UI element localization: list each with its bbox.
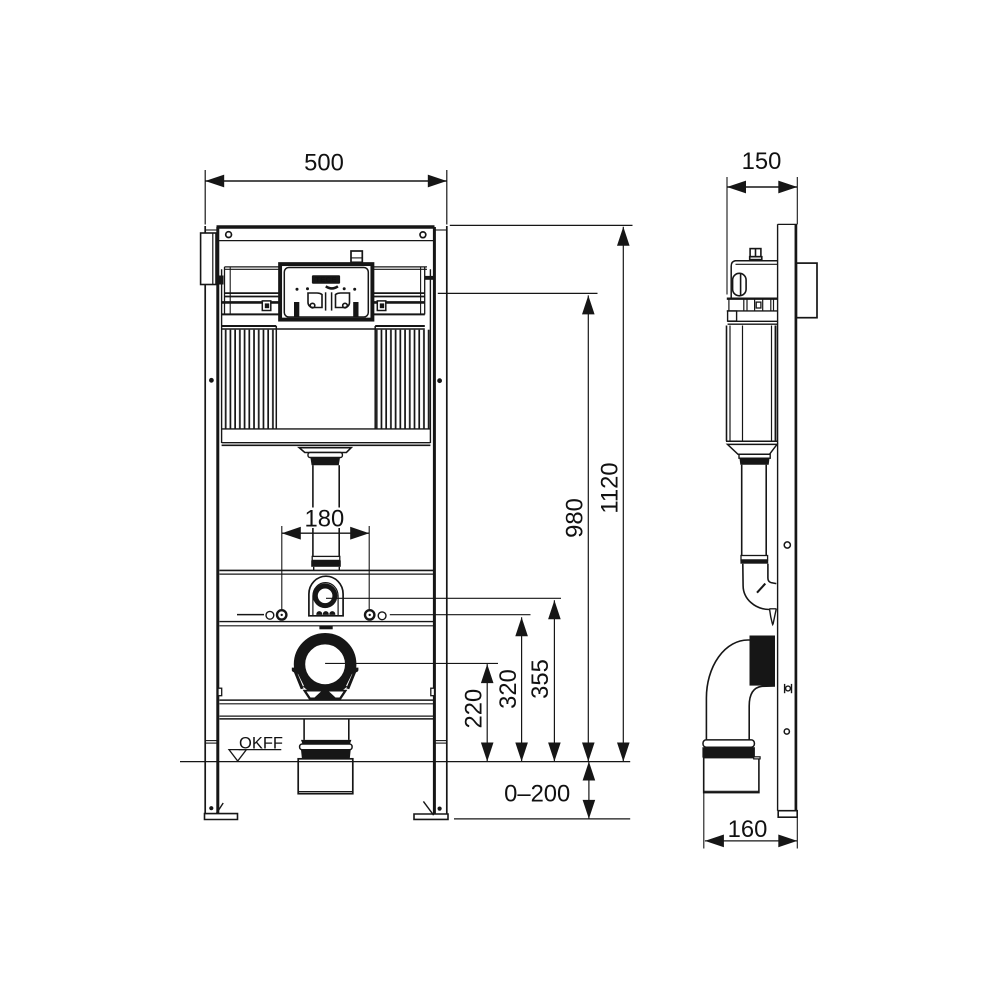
svg-text:320: 320	[495, 669, 522, 709]
svg-text:180: 180	[305, 505, 345, 532]
svg-text:160: 160	[728, 816, 768, 843]
svg-text:500: 500	[304, 149, 344, 176]
svg-text:150: 150	[742, 148, 782, 175]
svg-text:355: 355	[527, 659, 554, 699]
svg-text:980: 980	[562, 498, 589, 538]
svg-text:TECE: TECE	[315, 275, 336, 284]
svg-text:220: 220	[460, 689, 487, 729]
svg-text:1120: 1120	[597, 462, 624, 513]
svg-text:0–200: 0–200	[504, 781, 570, 808]
